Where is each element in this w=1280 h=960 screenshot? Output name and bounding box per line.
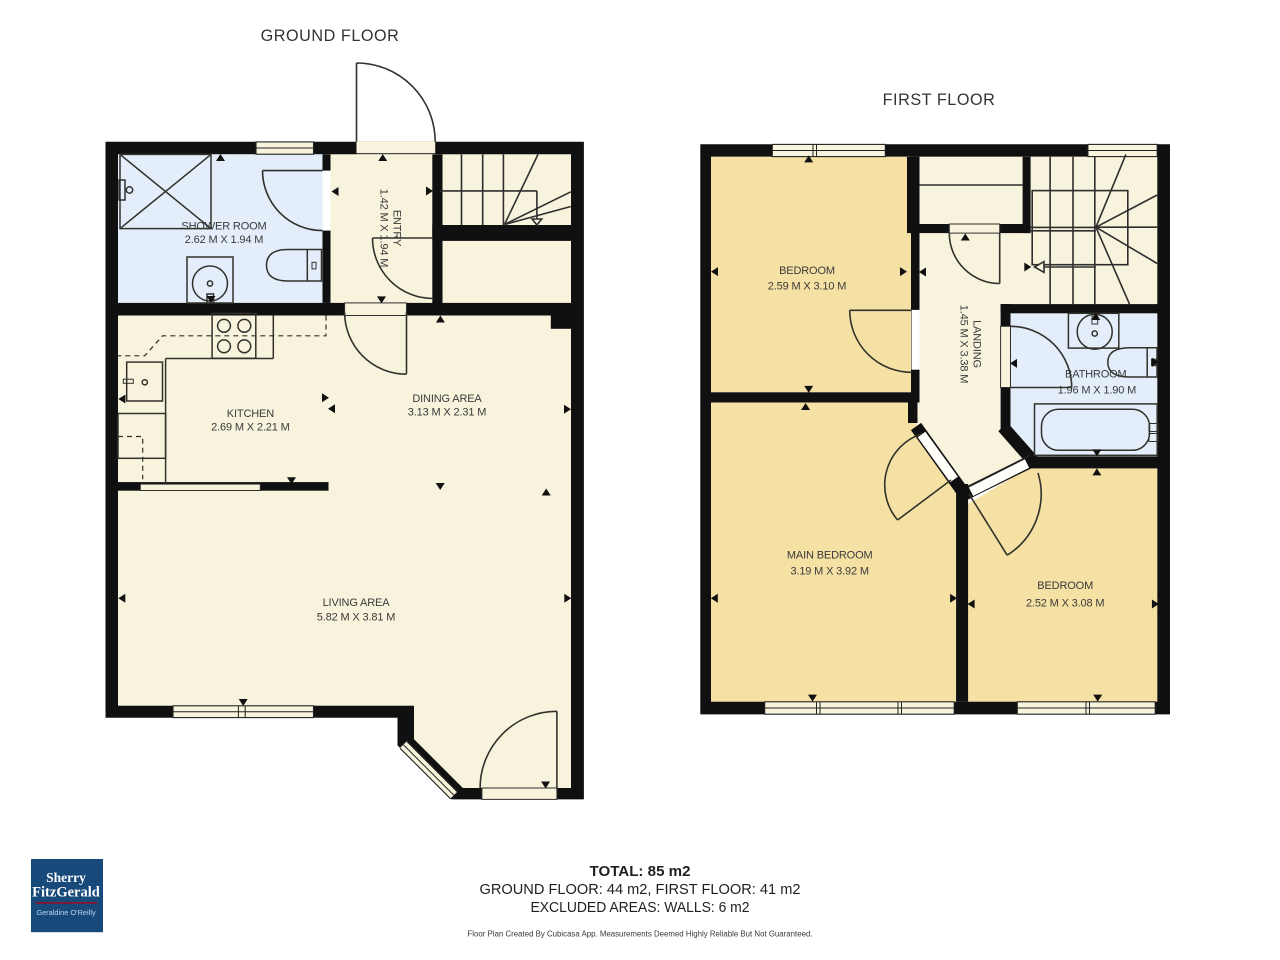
- svg-text:BEDROOM: BEDROOM: [1037, 580, 1093, 592]
- svg-text:1.42 M X 1.94 M: 1.42 M X 1.94 M: [378, 189, 390, 267]
- svg-text:TOTAL: 85 m2: TOTAL: 85 m2: [590, 863, 691, 880]
- svg-text:1.45 M X 3.38 M: 1.45 M X 3.38 M: [958, 305, 970, 383]
- svg-text:3.19 M X 3.92 M: 3.19 M X 3.92 M: [790, 566, 868, 578]
- svg-text:2.62 M X 1.94 M: 2.62 M X 1.94 M: [185, 234, 263, 246]
- svg-text:Geraldine O'Reilly: Geraldine O'Reilly: [36, 908, 96, 917]
- svg-text:FIRST FLOOR: FIRST FLOOR: [883, 91, 996, 109]
- svg-text:GROUND FLOOR: 44 m2, FIRST FLO: GROUND FLOOR: 44 m2, FIRST FLOOR: 41 m2: [480, 881, 801, 898]
- svg-text:BEDROOM: BEDROOM: [779, 265, 835, 277]
- svg-text:DINING AREA: DINING AREA: [412, 393, 482, 405]
- svg-text:LANDING: LANDING: [971, 320, 983, 368]
- svg-text:LIVING AREA: LIVING AREA: [323, 597, 391, 609]
- svg-text:Sherry: Sherry: [46, 870, 86, 885]
- svg-text:FitzGerald: FitzGerald: [32, 885, 100, 901]
- svg-text:SHOWER ROOM: SHOWER ROOM: [181, 221, 266, 233]
- svg-text:2.69 M X 2.21 M: 2.69 M X 2.21 M: [211, 422, 289, 434]
- svg-text:MAIN BEDROOM: MAIN BEDROOM: [787, 549, 873, 561]
- svg-text:ENTRY: ENTRY: [391, 210, 403, 247]
- svg-text:5.82 M X 3.81 M: 5.82 M X 3.81 M: [317, 612, 395, 624]
- svg-text:EXCLUDED AREAS: WALLS: 6 m2: EXCLUDED AREAS: WALLS: 6 m2: [531, 899, 750, 916]
- svg-text:1.96 M X 1.90 M: 1.96 M X 1.90 M: [1058, 385, 1136, 397]
- svg-text:BATHROOM: BATHROOM: [1065, 369, 1127, 381]
- svg-text:2.52 M X 3.08 M: 2.52 M X 3.08 M: [1026, 597, 1104, 609]
- svg-text:Floor Plan Created By Cubicasa: Floor Plan Created By Cubicasa App. Meas…: [468, 930, 813, 939]
- svg-text:GROUND FLOOR: GROUND FLOOR: [261, 27, 400, 45]
- svg-text:3.13 M X 2.31 M: 3.13 M X 2.31 M: [408, 407, 486, 419]
- svg-text:KITCHEN: KITCHEN: [227, 408, 274, 420]
- svg-text:2.59 M X 3.10 M: 2.59 M X 3.10 M: [768, 281, 846, 293]
